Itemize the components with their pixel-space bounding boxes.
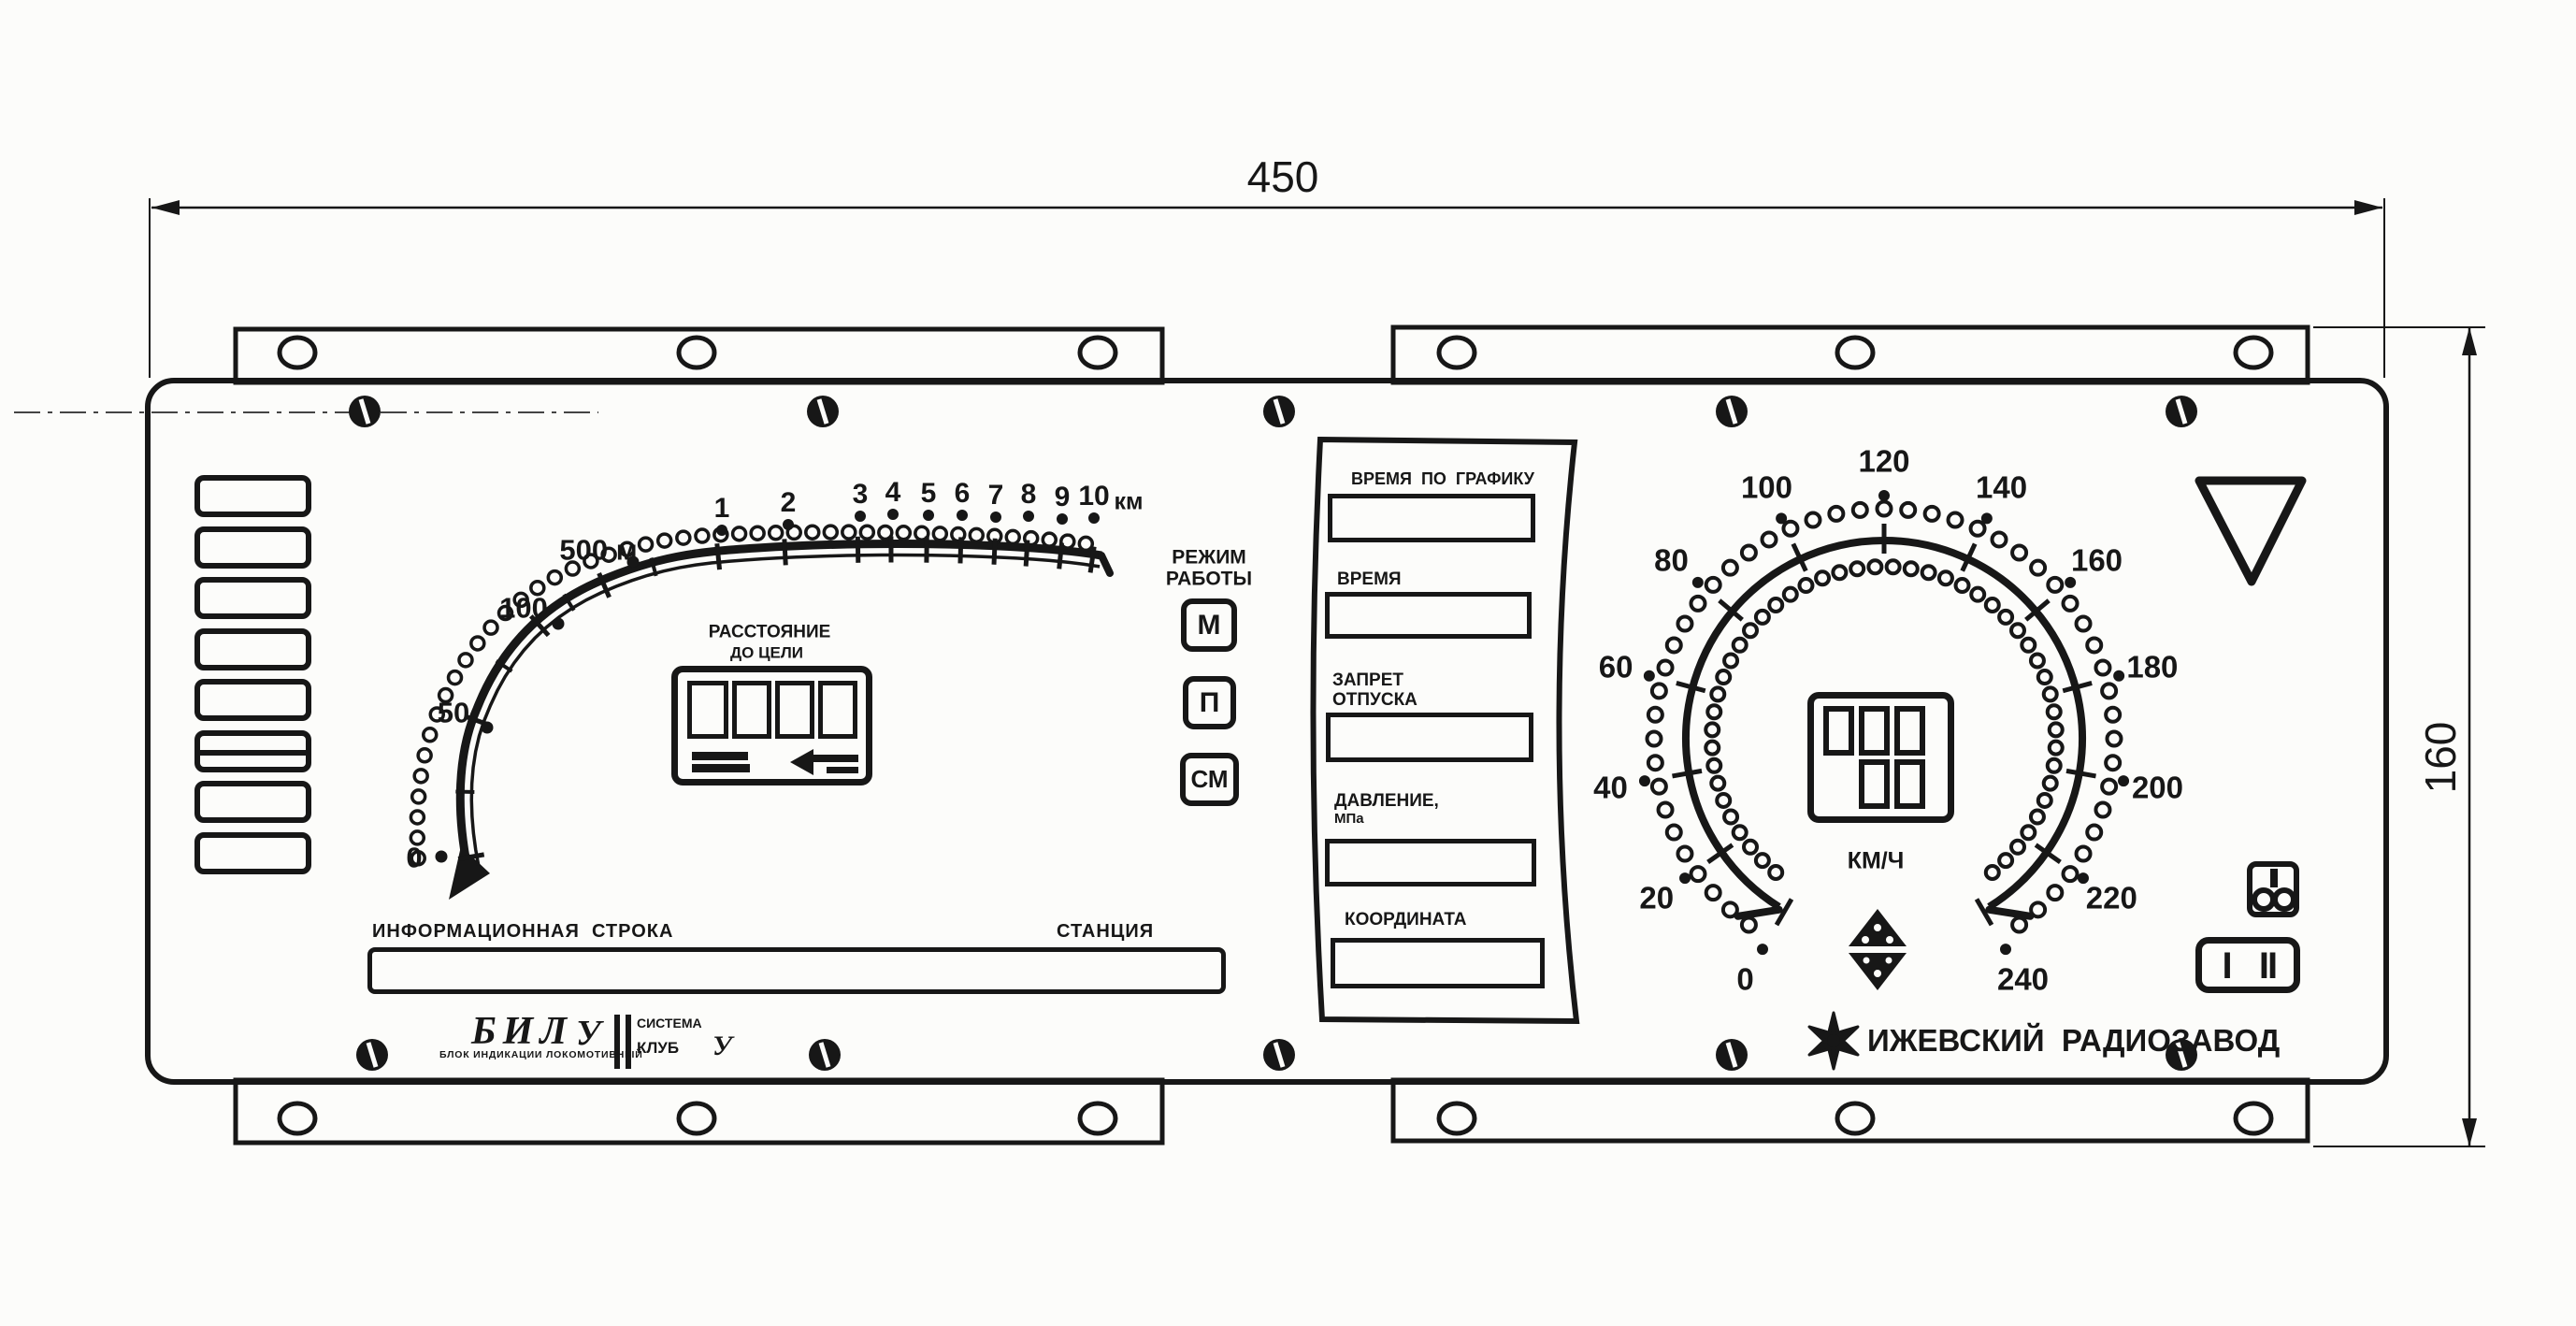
soft-key-divider <box>199 750 307 756</box>
distance-digit-cell <box>818 681 857 739</box>
dimension-width-label: 450 <box>1247 155 1319 198</box>
blueprint-canvas: 450 160 РАССТОЯНИЕ ДО ЦЕЛИ РЕЖИМ РАБОТЫ … <box>0 0 2576 1326</box>
speed-digit-cell <box>1894 759 1925 809</box>
channel-switch-label-2: II <box>2259 947 2276 985</box>
field-label-release-ban-2: ОТПУСКА <box>1332 691 1418 709</box>
info-line-label: ИНФОРМАЦИОННАЯ СТРОКА <box>372 922 673 941</box>
distance-tick-label: 6 <box>955 480 971 508</box>
station-label: СТАНЦИЯ <box>1057 922 1154 941</box>
brand-descriptor: БЛОК ИНДИКАЦИИ ЛОКОМОТИВНЫЙ <box>439 1050 643 1060</box>
soft-key-5[interactable] <box>194 679 311 721</box>
speed-tick-label: 200 <box>2132 771 2183 802</box>
distance-tick-label: 0 <box>406 843 422 872</box>
distance-digit-cell <box>775 681 814 739</box>
distance-tick-label: 10 <box>1078 483 1109 511</box>
soft-key-3[interactable] <box>194 577 311 619</box>
field-window-coordinate <box>1331 938 1545 988</box>
distance-display-title-1: РАССТОЯНИЕ <box>709 624 831 641</box>
mode-title-1: РЕЖИМ <box>1172 548 1246 568</box>
distance-tick-label: 5 <box>921 480 937 508</box>
field-label-pressure-2: МПа <box>1334 812 1364 826</box>
manufacturer-label: ИЖЕВСКИЙ РАДИОЗАВОД <box>1867 1025 2280 1056</box>
speed-tick-label: 180 <box>2126 652 2178 683</box>
distance-tick-label: 8 <box>1021 481 1037 509</box>
distance-tick-label: 50 <box>438 699 469 728</box>
speed-tick-label: 160 <box>2071 545 2123 576</box>
distance-digit-cell <box>687 681 728 739</box>
field-label-release-ban-1: ЗАПРЕТ <box>1332 671 1403 689</box>
soft-key-4[interactable] <box>194 628 311 670</box>
dimension-height-label: 160 <box>2419 722 2462 794</box>
speed-digit-cell <box>1894 706 1925 756</box>
brand-mod: У <box>576 1016 600 1051</box>
field-label-coordinate: КООРДИНАТА <box>1345 911 1466 929</box>
mode-button-sm[interactable]: СМ <box>1180 753 1239 806</box>
soft-key-1[interactable] <box>194 475 311 517</box>
speed-tick-label: 40 <box>1593 771 1628 802</box>
speed-digit-cell <box>1823 706 1854 756</box>
brand-model: БИЛ <box>471 1012 573 1051</box>
soft-key-7[interactable] <box>194 781 311 823</box>
distance-tick-label: 2 <box>781 489 797 517</box>
speed-unit-label: КМ/Ч <box>1848 850 1905 873</box>
speed-tick-label: 220 <box>2086 883 2137 914</box>
field-window-time <box>1325 592 1532 639</box>
distance-unit-label: км <box>1114 491 1143 514</box>
brand-system-word: СИСТЕМА <box>637 1016 702 1030</box>
distance-tick-label: 100 <box>499 594 548 623</box>
field-label-pressure-1: ДАВЛЕНИЕ, <box>1334 792 1439 810</box>
info-line-window <box>367 947 1226 994</box>
distance-tick-label: 500 м <box>559 536 637 565</box>
speed-tick-label: 100 <box>1741 471 1792 502</box>
field-label-schedule-time: ВРЕМЯ ПО ГРАФИКУ <box>1351 470 1534 487</box>
speed-digit-cell <box>1859 759 1890 809</box>
channel-switch[interactable] <box>2195 937 2300 993</box>
soft-key-8[interactable] <box>194 832 311 874</box>
field-window-release-ban <box>1326 713 1533 762</box>
distance-tick-label: 7 <box>988 482 1004 510</box>
mode-button-p[interactable]: П <box>1183 676 1236 729</box>
field-label-time: ВРЕМЯ <box>1337 570 1402 588</box>
distance-display-title-2: ДО ЦЕЛИ <box>730 645 803 661</box>
speed-tick-label: 60 <box>1599 652 1633 683</box>
distance-tick-label: 3 <box>853 481 869 509</box>
speed-tick-label: 240 <box>1997 964 2049 995</box>
soft-key-2[interactable] <box>194 526 311 569</box>
mode-title-2: РАБОТЫ <box>1166 569 1252 589</box>
field-window-pressure <box>1325 839 1536 886</box>
mode-button-m[interactable]: М <box>1181 598 1237 652</box>
speed-digit-cell <box>1859 706 1890 756</box>
speed-tick-label: 20 <box>1639 883 1674 914</box>
speed-tick-label: 140 <box>1976 471 2027 502</box>
field-window-schedule-time <box>1328 494 1535 542</box>
channel-switch-label-1: I <box>2222 947 2232 985</box>
speed-tick-label: 0 <box>1736 964 1753 995</box>
speed-tick-label: 120 <box>1858 446 1909 477</box>
distance-tick-label: 1 <box>714 495 730 523</box>
distance-tick-label: 9 <box>1055 483 1071 512</box>
labels-overlay: 450 160 РАССТОЯНИЕ ДО ЦЕЛИ РЕЖИМ РАБОТЫ … <box>0 0 2576 1326</box>
speed-tick-label: 80 <box>1654 545 1689 576</box>
brake-shoes-button[interactable] <box>2247 861 2299 917</box>
distance-digit-cell <box>732 681 771 739</box>
brand-system-name: КЛУБ <box>637 1040 679 1056</box>
brand-system-mod: У <box>712 1032 732 1060</box>
soft-key-6[interactable] <box>194 730 311 772</box>
distance-tick-label: 4 <box>885 479 901 507</box>
